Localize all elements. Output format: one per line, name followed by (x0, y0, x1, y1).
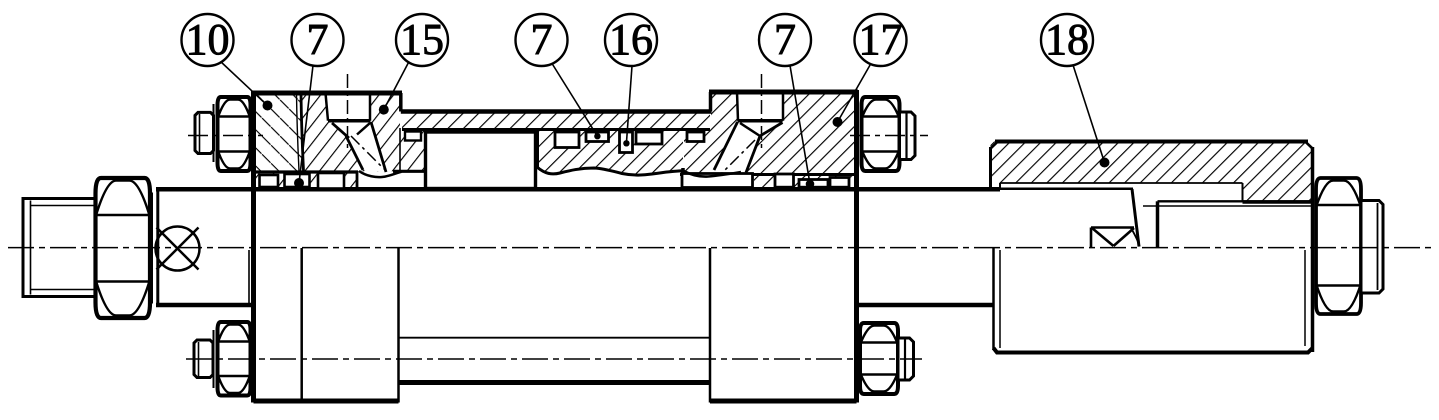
svg-text:7: 7 (307, 15, 329, 64)
svg-text:7: 7 (774, 15, 796, 64)
svg-text:17: 17 (859, 15, 903, 64)
svg-text:7: 7 (531, 15, 553, 64)
svg-text:10: 10 (186, 15, 230, 64)
svg-text:18: 18 (1045, 15, 1089, 64)
svg-text:15: 15 (400, 15, 444, 64)
svg-text:16: 16 (609, 15, 653, 64)
